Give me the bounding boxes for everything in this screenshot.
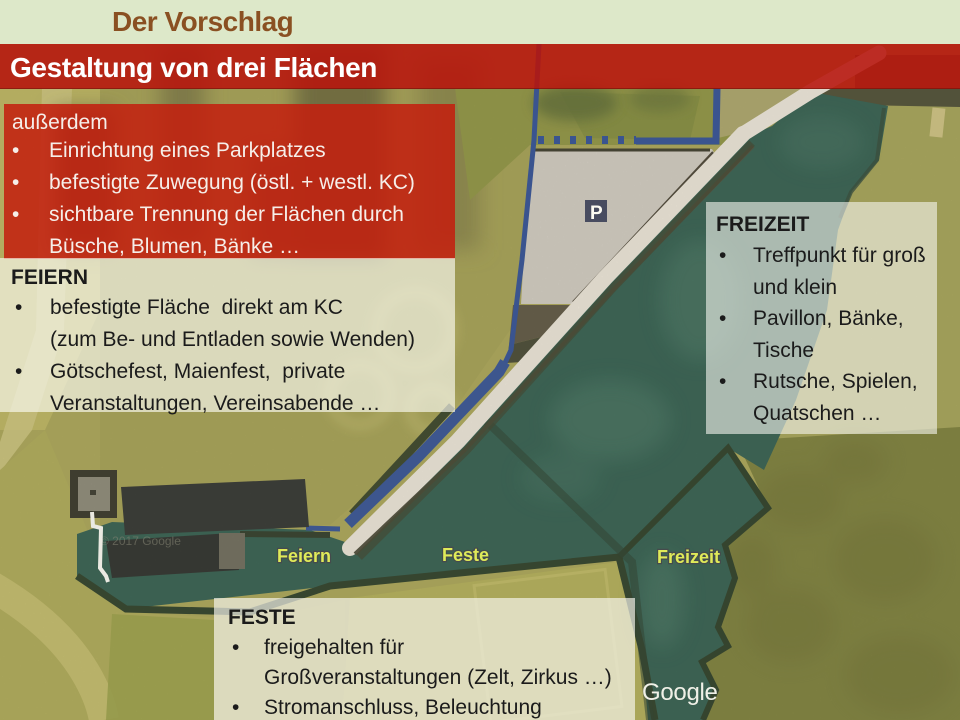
svg-text:P: P xyxy=(590,203,603,224)
svg-text:Google: Google xyxy=(642,679,718,706)
svg-text:Freizeit: Freizeit xyxy=(657,547,720,567)
svg-text:Feste: Feste xyxy=(442,545,489,565)
svg-text:Feiern: Feiern xyxy=(277,546,331,566)
